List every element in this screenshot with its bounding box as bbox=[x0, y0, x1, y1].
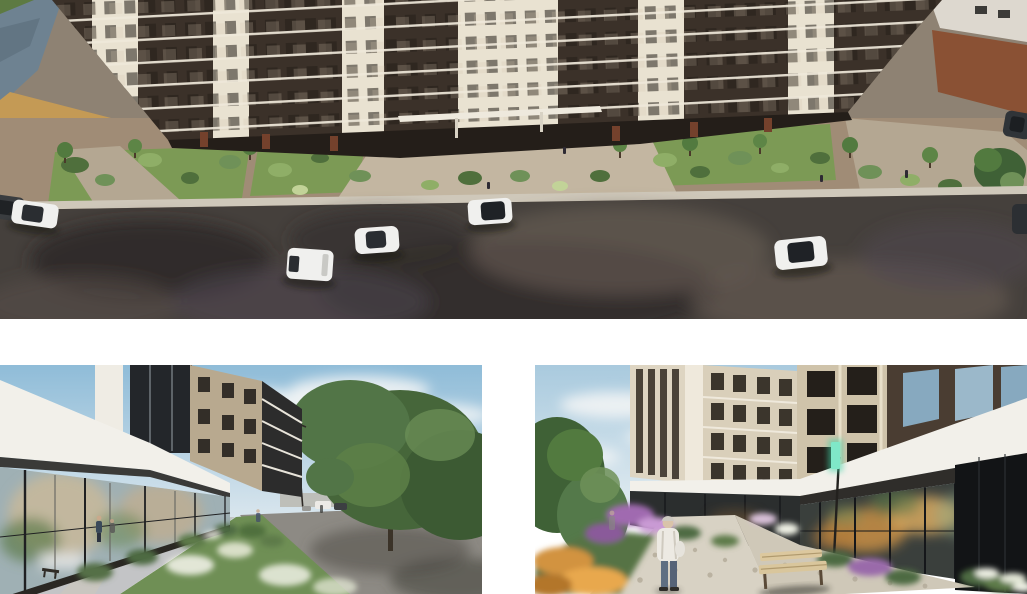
tree-island-right bbox=[974, 148, 1026, 192]
render-aerial-facade bbox=[0, 0, 1027, 319]
aerial-facade-scene bbox=[0, 0, 1027, 319]
courtyard-scene bbox=[535, 365, 1027, 594]
render-courtyard-view bbox=[535, 365, 1027, 594]
distant-figure bbox=[609, 511, 615, 530]
car-white-sedan bbox=[350, 225, 404, 264]
wooden-bench bbox=[756, 549, 831, 594]
render-gallery bbox=[0, 0, 1027, 594]
street-view-scene bbox=[0, 365, 482, 594]
car-white-suv-center bbox=[464, 197, 516, 233]
white-pier bbox=[685, 365, 703, 485]
van-white bbox=[281, 247, 338, 291]
render-street-view bbox=[0, 365, 482, 594]
car-dark-right-lower bbox=[1012, 204, 1027, 234]
